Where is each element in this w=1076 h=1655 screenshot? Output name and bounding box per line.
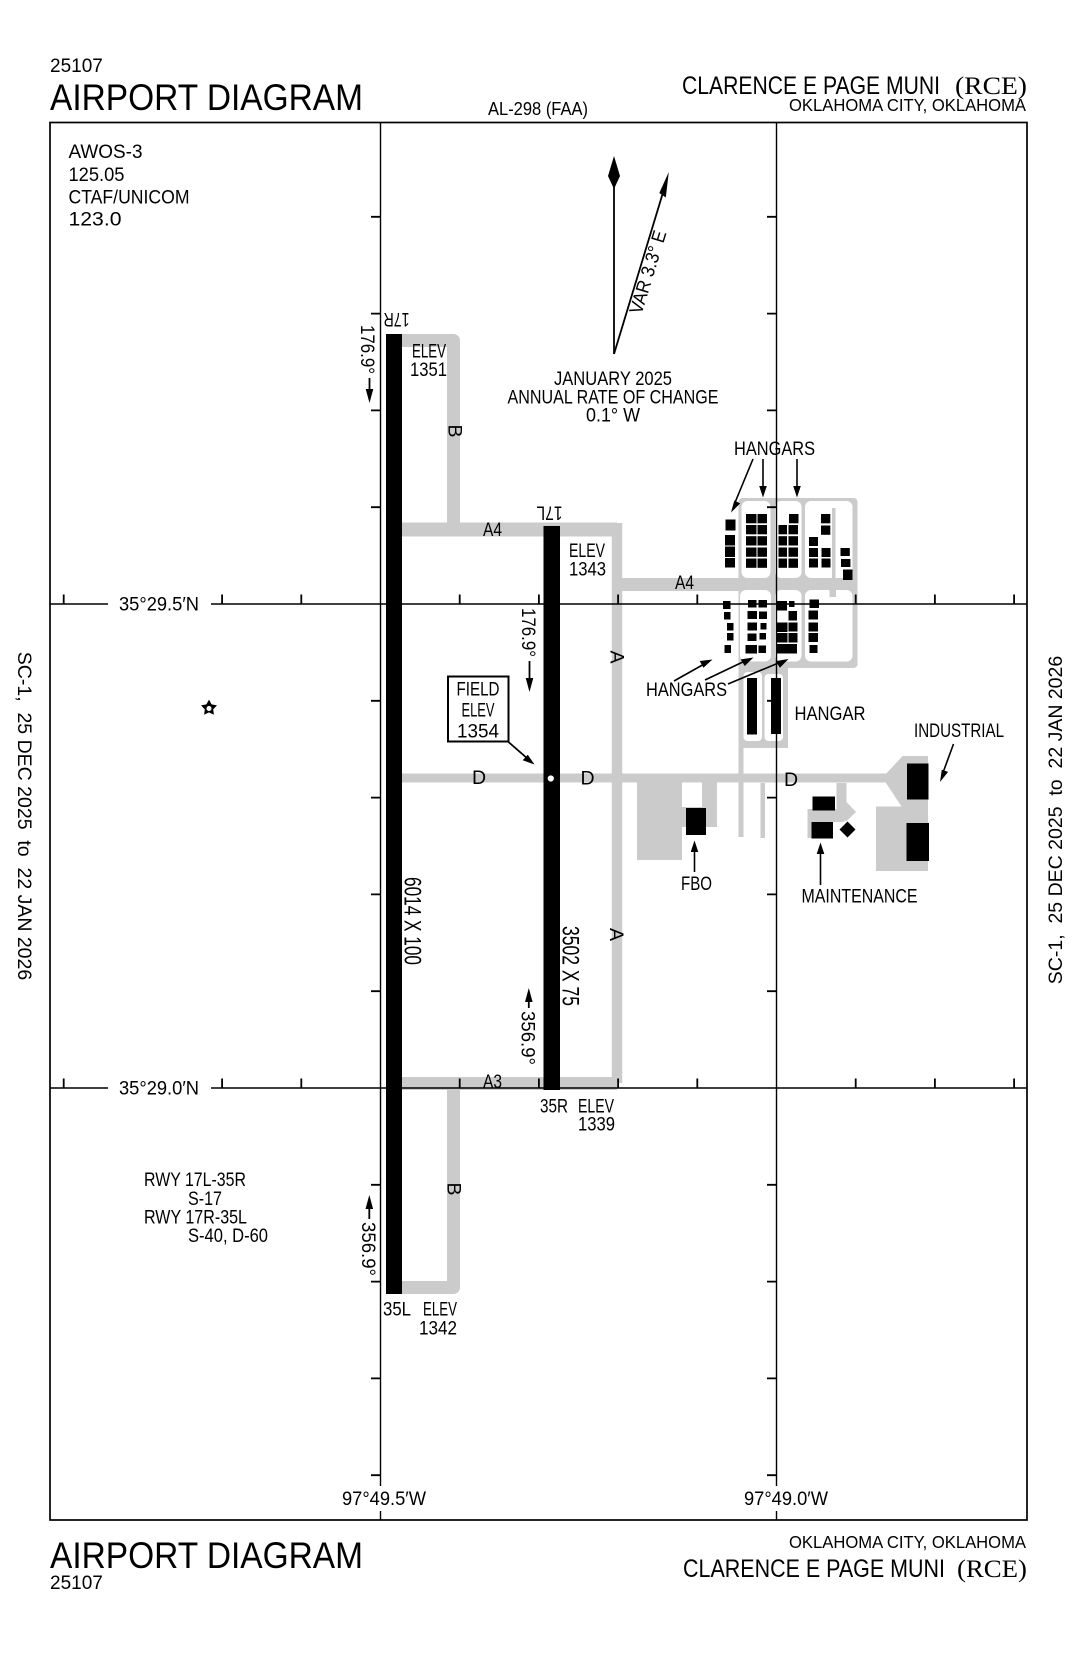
svg-text:INDUSTRIAL: INDUSTRIAL (914, 720, 1004, 742)
svg-text:25107: 25107 (50, 1573, 103, 1594)
svg-text:6014 X 100: 6014 X 100 (399, 877, 426, 965)
svg-text:356.9°: 356.9° (517, 1011, 538, 1065)
svg-text:(RCE): (RCE) (957, 1556, 1027, 1583)
svg-text:97°49.5′W: 97°49.5′W (342, 1489, 426, 1510)
svg-text:1343: 1343 (569, 559, 606, 581)
svg-text:AL-298 (FAA): AL-298 (FAA) (488, 99, 588, 119)
svg-text:FIELD: FIELD (457, 679, 500, 701)
svg-text:HANGAR: HANGAR (795, 703, 866, 725)
svg-text:1339: 1339 (578, 1114, 615, 1136)
svg-text:SC-1, 25 DEC 2025 to 22 JAN: SC-1, 25 DEC 2025 to 22 JAN 2026 (13, 652, 35, 980)
svg-text:17R: 17R (384, 308, 410, 330)
svg-text:OKLAHOMA CITY, OKLAHOMA: OKLAHOMA CITY, OKLAHOMA (789, 1532, 1026, 1552)
svg-text:MAINTENANCE: MAINTENANCE (802, 886, 918, 908)
svg-text:0.1° W: 0.1° W (586, 405, 641, 427)
svg-text:A3: A3 (483, 1071, 502, 1093)
svg-text:A: A (606, 650, 628, 663)
svg-text:AWOS-3: AWOS-3 (69, 141, 143, 163)
svg-text:A4: A4 (675, 572, 694, 594)
svg-text:CLARENCE E PAGE MUNI: CLARENCE E PAGE MUNI (683, 1555, 945, 1583)
svg-text:HANGARS: HANGARS (734, 438, 815, 460)
svg-text:176.9°: 176.9° (517, 608, 538, 657)
svg-text:125.05: 125.05 (69, 164, 125, 186)
svg-text:D: D (580, 768, 594, 790)
svg-text:1354: 1354 (457, 721, 499, 743)
svg-text:35°29.5′N: 35°29.5′N (119, 594, 199, 616)
svg-text:35L: 35L (383, 1299, 411, 1321)
svg-text:3502 X 75: 3502 X 75 (557, 926, 584, 1006)
svg-text:35°29.0′N: 35°29.0′N (119, 1078, 199, 1100)
svg-text:97°49.0′W: 97°49.0′W (744, 1489, 828, 1510)
svg-text:A4: A4 (483, 519, 502, 541)
svg-text:1342: 1342 (419, 1318, 457, 1340)
svg-text:SC-1, 25 DEC 2025 to 22 JAN: SC-1, 25 DEC 2025 to 22 JAN 2026 (1045, 656, 1067, 984)
svg-text:D: D (472, 767, 486, 789)
svg-text:HANGARS: HANGARS (646, 679, 727, 701)
svg-text:OKLAHOMA CITY, OKLAHOMA: OKLAHOMA CITY, OKLAHOMA (789, 95, 1026, 115)
svg-text:123.0: 123.0 (69, 209, 122, 231)
svg-text:17L: 17L (536, 502, 562, 524)
svg-text:D: D (784, 769, 798, 791)
svg-text:B: B (443, 1182, 465, 1195)
svg-text:B: B (444, 424, 466, 437)
svg-text:1351: 1351 (410, 359, 447, 381)
svg-text:S-40, D-60: S-40, D-60 (188, 1225, 268, 1247)
svg-text:25107: 25107 (50, 56, 103, 77)
svg-text:CTAF/UNICOM: CTAF/UNICOM (69, 187, 190, 209)
svg-text:AIRPORT DIAGRAM: AIRPORT DIAGRAM (50, 77, 363, 118)
svg-text:356.9°: 356.9° (357, 1222, 378, 1276)
svg-text:AIRPORT DIAGRAM: AIRPORT DIAGRAM (50, 1535, 363, 1576)
svg-text:A: A (605, 928, 627, 941)
svg-text:FBO: FBO (681, 873, 712, 895)
svg-text:176.9°: 176.9° (356, 325, 377, 374)
svg-text:35R: 35R (540, 1096, 568, 1118)
svg-text:ELEV: ELEV (462, 700, 495, 722)
